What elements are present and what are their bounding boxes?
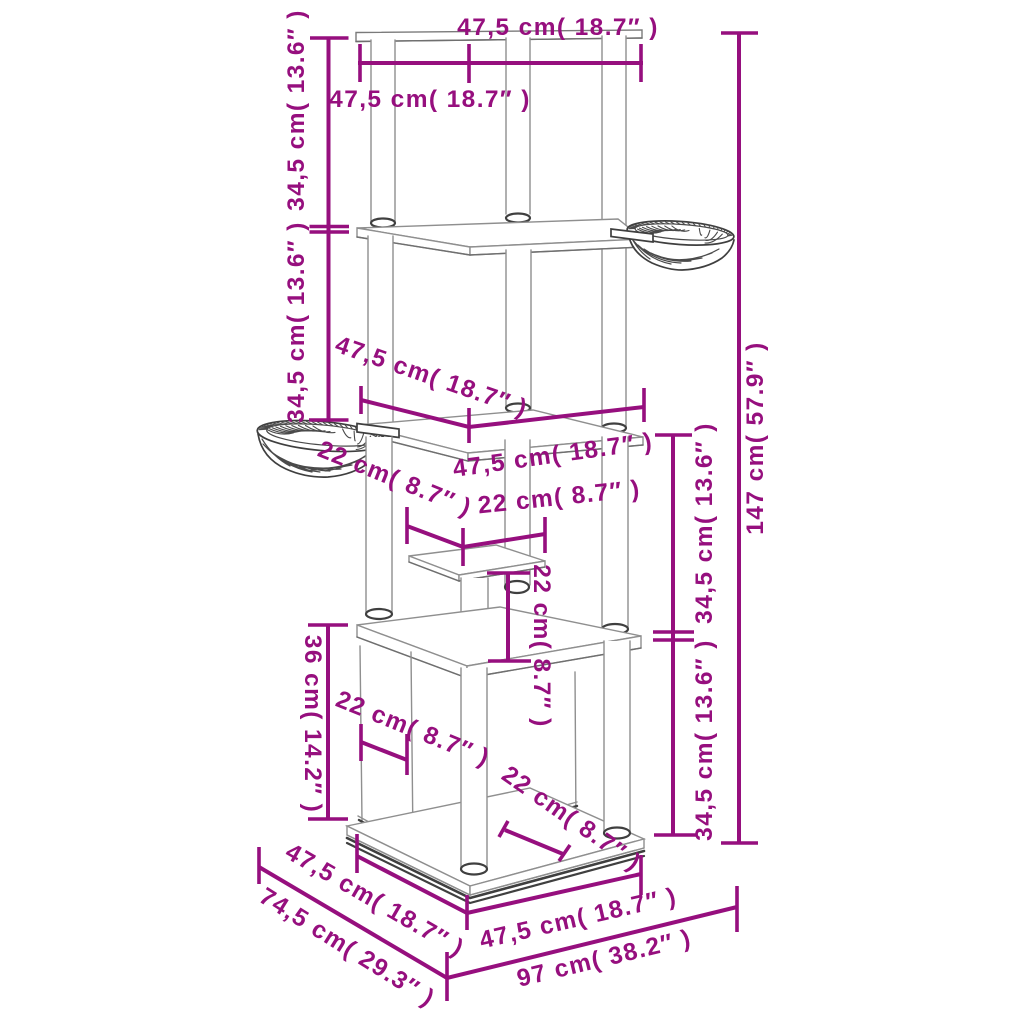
svg-text:47,5 cm( 18.7″ ): 47,5 cm( 18.7″ ) (329, 86, 531, 113)
svg-text:34,5 cm( 13.6″ ): 34,5 cm( 13.6″ ) (691, 639, 718, 841)
svg-text:47,5 cm( 18.7″ ): 47,5 cm( 18.7″ ) (457, 14, 659, 41)
svg-text:34,5 cm( 13.6″ ): 34,5 cm( 13.6″ ) (283, 9, 310, 211)
svg-text:36 cm( 14.2″ ): 36 cm( 14.2″ ) (299, 635, 326, 813)
svg-text:147 cm( 57.9″ ): 147 cm( 57.9″ ) (742, 341, 769, 534)
svg-text:34,5 cm( 13.6″ ): 34,5 cm( 13.6″ ) (691, 422, 718, 624)
svg-text:34,5 cm( 13.6″ ): 34,5 cm( 13.6″ ) (283, 221, 310, 423)
svg-text:22 cm( 8.7″ ): 22 cm( 8.7″ ) (528, 564, 555, 727)
